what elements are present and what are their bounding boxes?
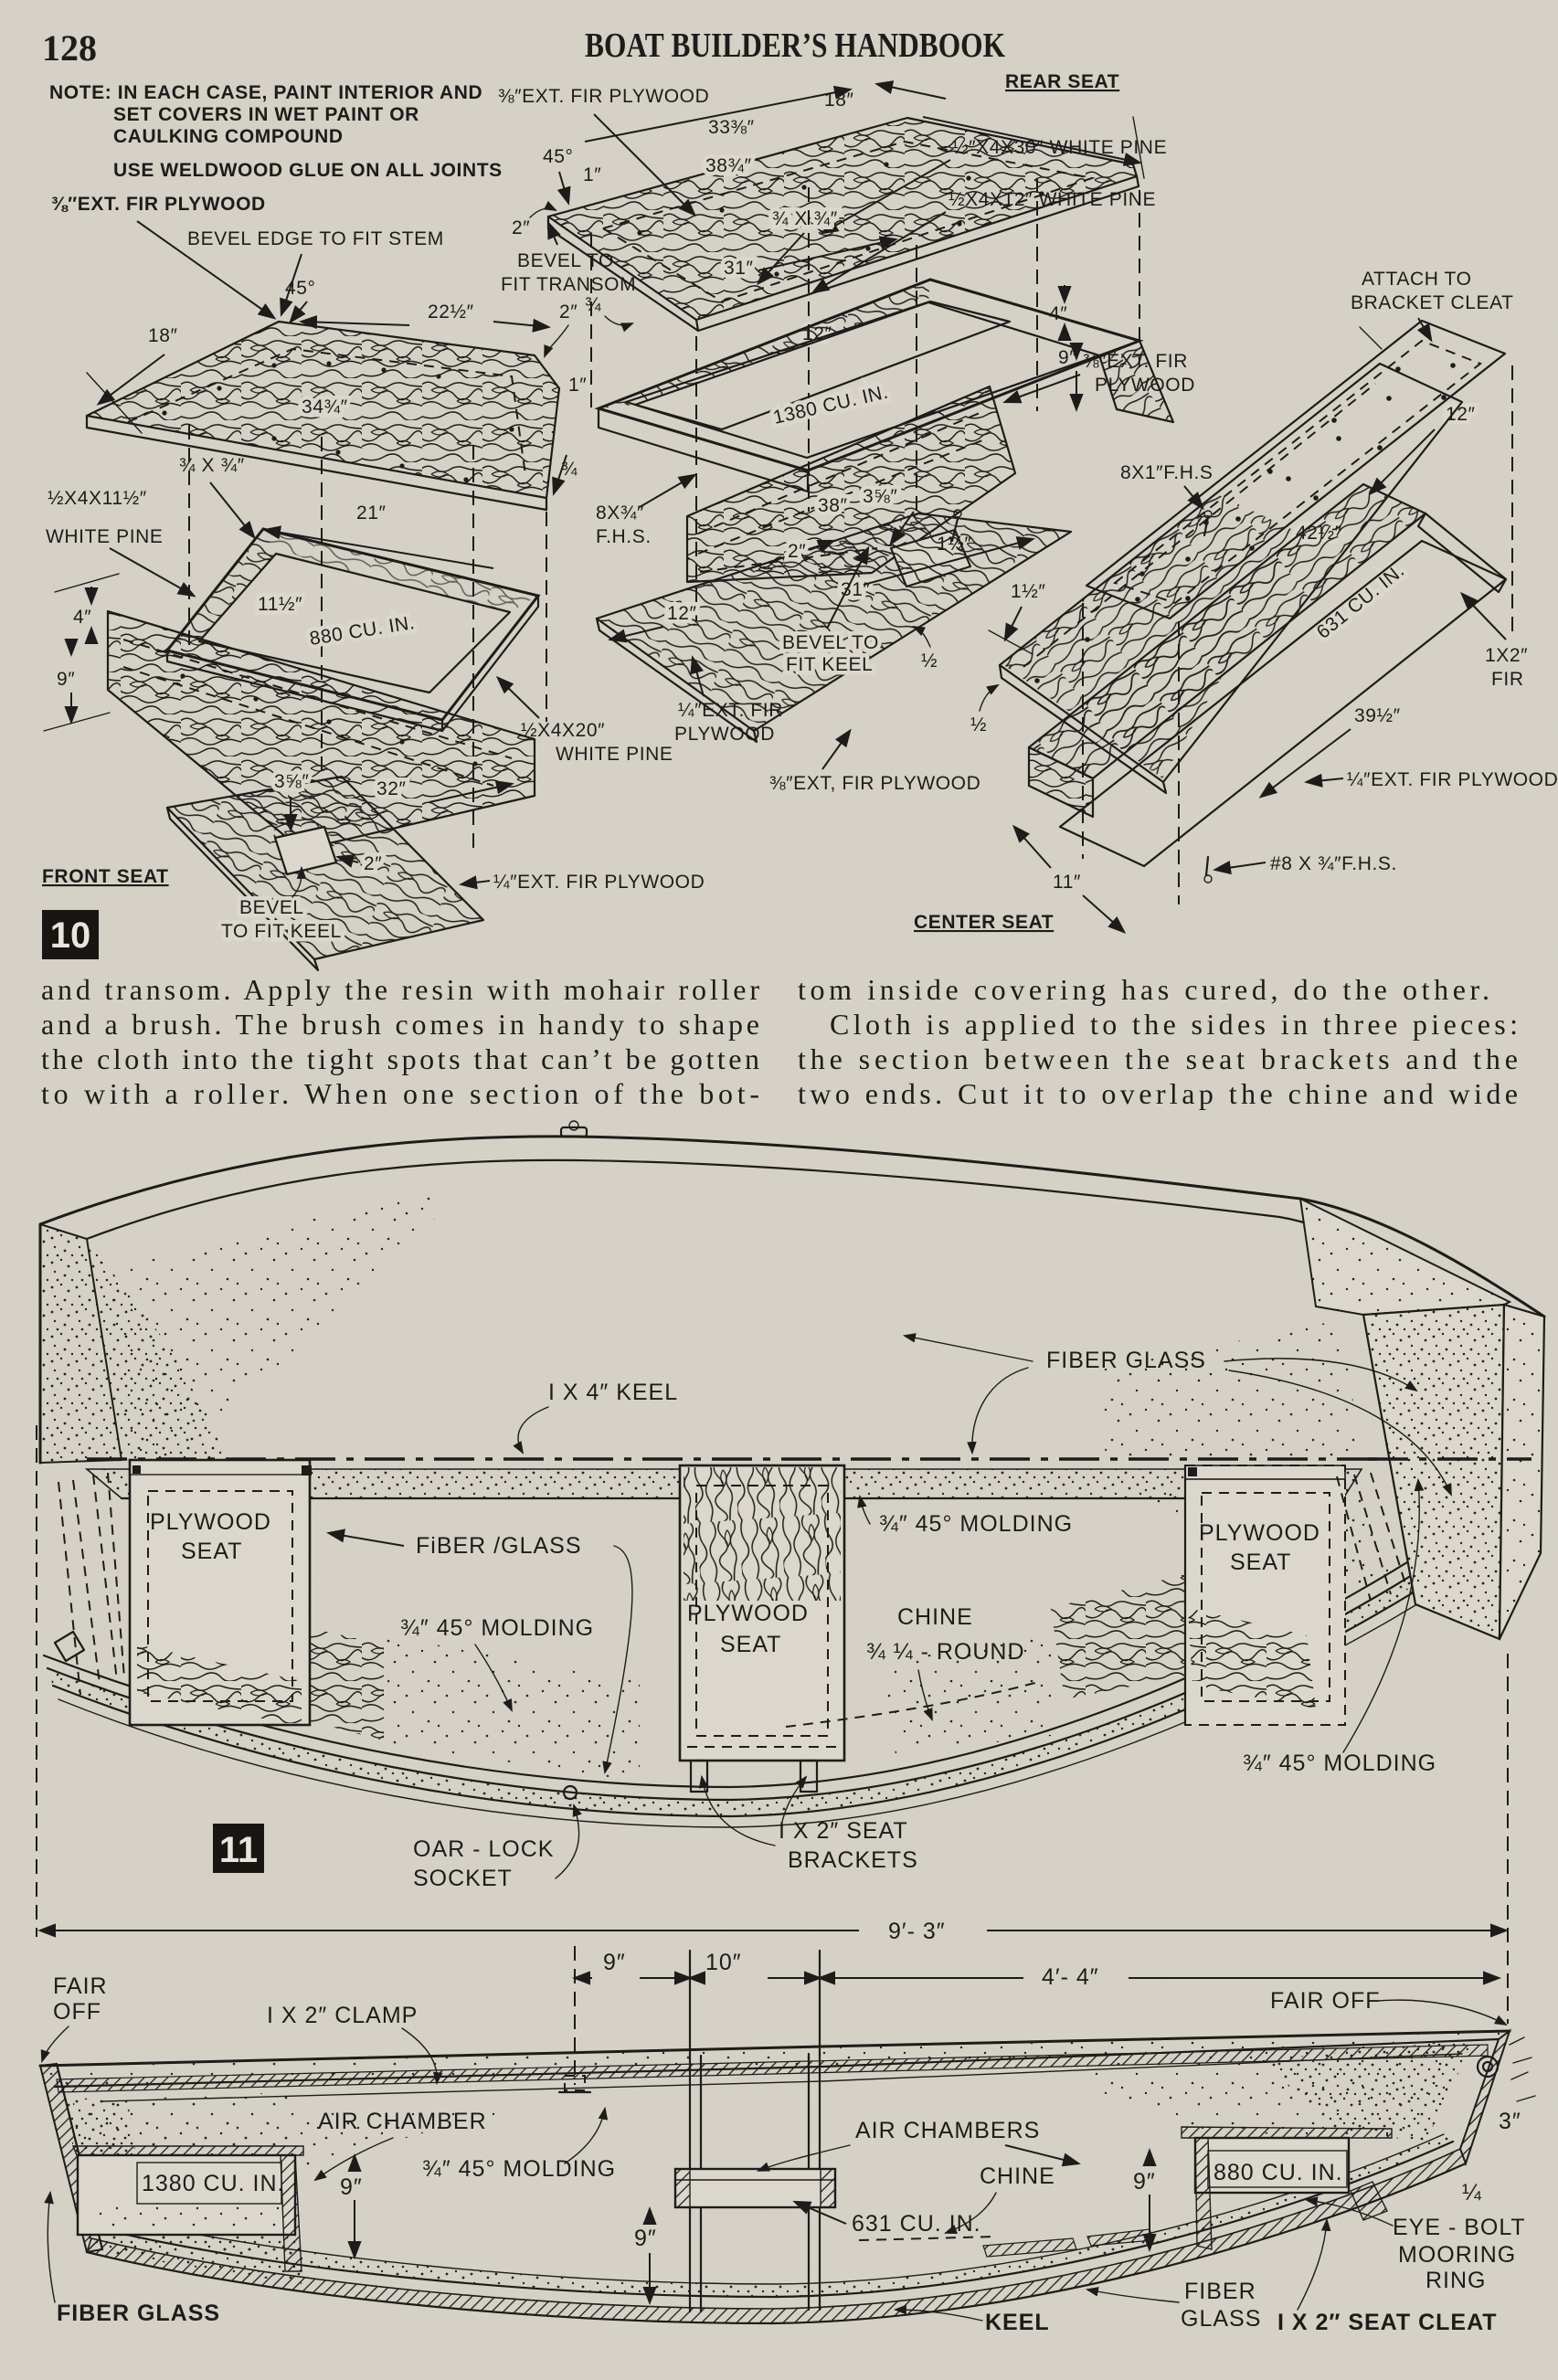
svg-text:CENTER SEAT: CENTER SEAT (914, 912, 1054, 933)
svg-text:I X 4″ KEEL: I X 4″ KEEL (548, 1380, 678, 1405)
svg-text:PLYWOOD: PLYWOOD (674, 724, 775, 745)
svg-text:11: 11 (219, 1830, 258, 1870)
svg-text:33⅜″: 33⅜″ (708, 117, 755, 138)
svg-text:9″: 9″ (634, 2226, 657, 2251)
svg-text:8X¾″: 8X¾″ (596, 502, 644, 524)
svg-text:22½″: 22½″ (428, 301, 474, 323)
svg-text:31″: 31″ (841, 579, 871, 600)
svg-text:PLYWOOD: PLYWOOD (150, 1509, 271, 1535)
svg-text:SEAT: SEAT (1230, 1550, 1291, 1575)
svg-text:I X 2″ CLAMP: I X 2″ CLAMP (267, 2003, 418, 2028)
svg-text:4″: 4″ (1049, 303, 1067, 324)
svg-text:1X2″: 1X2″ (1485, 645, 1528, 666)
svg-text:F.H.S.: F.H.S. (596, 526, 652, 547)
svg-text:FiBER /GLASS: FiBER /GLASS (416, 1533, 582, 1559)
svg-text:34¾″: 34¾″ (302, 397, 348, 418)
svg-text:½X4X11½″: ½X4X11½″ (48, 488, 147, 509)
svg-text:9″: 9″ (1058, 347, 1076, 368)
svg-text:9″: 9″ (603, 1950, 626, 1975)
svg-text:FIBER GLASS: FIBER GLASS (1046, 1348, 1206, 1373)
svg-text:I X 2″ SEAT CLEAT: I X 2″ SEAT CLEAT (1277, 2310, 1498, 2335)
svg-text:Cloth is applied to the sides: Cloth is applied to the sides in three p… (830, 1008, 1518, 1041)
svg-text:#8 X ¾″F.H.S.: #8 X ¾″F.H.S. (1270, 853, 1397, 874)
svg-text:BRACKETS: BRACKETS (788, 1847, 918, 1873)
svg-text:FIBER: FIBER (1184, 2279, 1256, 2304)
svg-text:1″: 1″ (583, 164, 601, 185)
svg-text:TO FIT KEEL: TO FIT KEEL (221, 921, 342, 942)
svg-text:10″: 10″ (705, 1950, 742, 1975)
svg-text:FIBER GLASS: FIBER GLASS (57, 2301, 220, 2326)
svg-text:WHITE PINE: WHITE PINE (46, 526, 164, 547)
svg-text:8X1″F.H.S: 8X1″F.H.S (1120, 462, 1214, 483)
svg-text:11″: 11″ (1053, 872, 1081, 893)
svg-text:⅜″EXT, FIR PLYWOOD: ⅜″EXT, FIR PLYWOOD (769, 773, 980, 794)
svg-text:½X4X20″: ½X4X20″ (521, 720, 605, 741)
svg-text:PLYWOOD: PLYWOOD (1095, 375, 1195, 396)
svg-text:3⅝″: 3⅝″ (863, 486, 897, 507)
svg-text:2″: 2″ (788, 541, 806, 562)
svg-text:21″: 21″ (356, 502, 387, 524)
svg-text:3⅝″: 3⅝″ (274, 771, 309, 792)
svg-text:39½″: 39½″ (1354, 705, 1401, 726)
svg-text:RING: RING (1426, 2268, 1487, 2293)
svg-text:12″: 12″ (1446, 404, 1476, 425)
svg-text:SEAT: SEAT (181, 1539, 242, 1564)
svg-text:32″: 32″ (376, 778, 407, 799)
svg-text:GLASS: GLASS (1181, 2306, 1261, 2332)
svg-text:18″: 18″ (824, 90, 854, 111)
svg-text:18″: 18″ (148, 325, 178, 346)
svg-text:38¾″: 38¾″ (705, 155, 752, 176)
svg-text:SOCKET: SOCKET (413, 1866, 513, 1891)
svg-text:SET COVERS IN WET PAINT OR: SET COVERS IN WET PAINT OR (113, 104, 419, 125)
svg-text:½: ½ (970, 714, 987, 735)
svg-text:45°: 45° (543, 146, 574, 167)
svg-text:1½″: 1½″ (1011, 581, 1045, 602)
svg-text:880 CU. IN.: 880 CU. IN. (1214, 2160, 1343, 2185)
svg-text:11½″: 11½″ (258, 594, 302, 615)
svg-text:FIT TRANSOM: FIT TRANSOM (501, 274, 636, 295)
svg-text:¾″ 45° MOLDING: ¾″ 45° MOLDING (400, 1615, 594, 1641)
svg-text:FRONT SEAT: FRONT SEAT (42, 866, 169, 887)
svg-text:BEVEL: BEVEL (239, 897, 304, 918)
svg-text:¾ ¼ - ROUND: ¾ ¼ - ROUND (866, 1639, 1025, 1665)
svg-text:31″: 31″ (724, 258, 754, 279)
svg-text:¼″EXT. FIR PLYWOOD: ¼″EXT. FIR PLYWOOD (493, 872, 705, 893)
svg-text:2″: 2″ (364, 853, 382, 874)
svg-text:¼: ¼ (1462, 2180, 1482, 2205)
svg-text:OFF: OFF (53, 1999, 101, 2025)
svg-text:¼″EXT. FIR: ¼″EXT. FIR (678, 700, 783, 721)
svg-text:9′- 3″: 9′- 3″ (888, 1919, 946, 1944)
svg-text:4′- 4″: 4′- 4″ (1042, 1964, 1099, 1990)
svg-text:4″: 4″ (73, 607, 91, 628)
svg-text:¾ X ¾″: ¾ X ¾″ (772, 208, 838, 229)
svg-text:MOORING: MOORING (1398, 2242, 1516, 2268)
svg-text:NOTE: IN EACH CASE, PAINT INTE: NOTE: IN EACH CASE, PAINT INTERIOR AND (49, 82, 482, 103)
svg-text:⅜″EXT. FIR PLYWOOD: ⅜″EXT. FIR PLYWOOD (51, 194, 266, 215)
svg-text:BRACKET CLEAT: BRACKET CLEAT (1351, 292, 1514, 313)
svg-text:FIT KEEL: FIT KEEL (786, 654, 873, 675)
svg-text:BEVEL EDGE TO FIT STEM: BEVEL EDGE TO FIT STEM (187, 228, 444, 249)
svg-text:ATTACH TO: ATTACH TO (1362, 269, 1472, 290)
svg-text:2″: 2″ (512, 217, 530, 238)
svg-text:CHINE: CHINE (980, 2163, 1055, 2189)
svg-text:9″: 9″ (1133, 2169, 1156, 2195)
svg-text:BOAT BUILDER’S HANDBOOK: BOAT BUILDER’S HANDBOOK (585, 26, 1005, 65)
svg-text:1″: 1″ (568, 375, 587, 396)
svg-text:9″: 9″ (340, 2174, 363, 2200)
svg-text:FAIR OFF: FAIR OFF (1270, 1988, 1381, 2014)
svg-text:REAR SEAT: REAR SEAT (1005, 71, 1119, 92)
svg-text:I X 2″ SEAT: I X 2″ SEAT (779, 1818, 908, 1844)
svg-text:¾″ 45° MOLDING: ¾″ 45° MOLDING (422, 2156, 616, 2182)
svg-text:FIR: FIR (1491, 669, 1524, 690)
svg-text:¾″ 45° MOLDING: ¾″ 45° MOLDING (1243, 1751, 1436, 1776)
svg-text:⅜″EXT. FIR PLYWOOD: ⅜″EXT. FIR PLYWOOD (498, 86, 709, 107)
svg-text:KEEL: KEEL (985, 2310, 1050, 2335)
svg-text:AIR CHAMBERS: AIR CHAMBERS (855, 2118, 1040, 2143)
svg-text:10: 10 (50, 915, 91, 956)
svg-text:WHITE PINE: WHITE PINE (556, 744, 673, 765)
svg-text:¾ X ¾″: ¾ X ¾″ (179, 455, 245, 476)
svg-text:38″: 38″ (818, 495, 848, 516)
svg-text:PLYWOOD: PLYWOOD (687, 1601, 809, 1626)
svg-text:½: ½ (921, 651, 938, 672)
svg-text:3″: 3″ (1499, 2109, 1521, 2134)
svg-text:two ends. Cut it to overlap t: two ends. Cut it to overlap the chine an… (798, 1077, 1518, 1110)
svg-text:SEAT: SEAT (720, 1632, 781, 1657)
svg-text:PLYWOOD: PLYWOOD (1199, 1520, 1320, 1546)
svg-text:1½″: 1½″ (937, 534, 971, 555)
svg-text:2″: 2″ (559, 301, 578, 323)
svg-text:BEVEL TO: BEVEL TO (782, 632, 879, 653)
svg-text:128: 128 (42, 27, 97, 69)
svg-text:¾″ 45° MOLDING: ¾″ 45° MOLDING (879, 1511, 1073, 1537)
svg-text:45°: 45° (285, 278, 316, 299)
svg-text:¾: ¾ (585, 294, 601, 315)
svg-text:CAULKING COMPOUND: CAULKING COMPOUND (113, 126, 344, 147)
svg-text:USE WELDWOOD GLUE ON ALL JOINT: USE WELDWOOD GLUE ON ALL JOINTS (113, 160, 503, 181)
svg-text:EYE - BOLT: EYE - BOLT (1393, 2215, 1526, 2240)
svg-text:tom inside covering has cured,: tom inside covering has cured, do the ot… (798, 973, 1489, 1006)
svg-text:12″: 12″ (667, 603, 697, 624)
svg-text:OAR - LOCK: OAR - LOCK (413, 1836, 554, 1862)
svg-text:AIR CHAMBER: AIR CHAMBER (318, 2109, 487, 2134)
svg-text:631 CU. IN.: 631 CU. IN. (852, 2211, 981, 2237)
svg-text:FAIR: FAIR (53, 1973, 108, 1999)
svg-text:¼″EXT. FIR PLYWOOD: ¼″EXT. FIR PLYWOOD (1347, 769, 1558, 790)
svg-text:1380 CU. IN.: 1380 CU. IN. (142, 2171, 285, 2196)
svg-text:CHINE: CHINE (897, 1604, 973, 1630)
svg-text:⅜″EXT. FIR: ⅜″EXT. FIR (1083, 351, 1188, 372)
svg-text:9″: 9″ (57, 669, 75, 690)
